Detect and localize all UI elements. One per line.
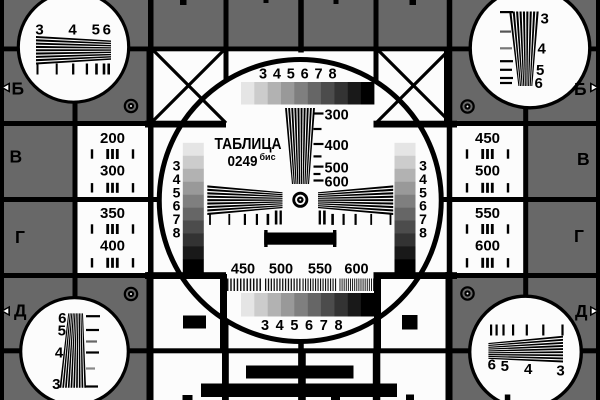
svg-text:3: 3 xyxy=(261,318,269,334)
svg-text:5: 5 xyxy=(287,67,295,83)
svg-text:200: 200 xyxy=(100,130,125,147)
svg-text:550: 550 xyxy=(475,205,500,222)
svg-text:500: 500 xyxy=(475,163,500,180)
svg-text:8: 8 xyxy=(334,318,342,334)
svg-text:600: 600 xyxy=(344,262,368,278)
svg-text:Д: Д xyxy=(14,301,27,321)
svg-text:4: 4 xyxy=(273,67,281,83)
svg-text:6: 6 xyxy=(488,357,496,374)
svg-text:4: 4 xyxy=(538,41,547,58)
svg-text:бис: бис xyxy=(260,152,276,162)
svg-text:5: 5 xyxy=(501,358,509,375)
svg-text:5: 5 xyxy=(58,323,66,340)
svg-text:7: 7 xyxy=(315,67,323,83)
svg-text:ТАБЛИЦА: ТАБЛИЦА xyxy=(215,136,282,153)
svg-text:3: 3 xyxy=(35,22,43,39)
svg-text:4: 4 xyxy=(68,22,77,39)
svg-text:4: 4 xyxy=(55,345,64,362)
svg-text:300: 300 xyxy=(325,108,349,124)
svg-text:6: 6 xyxy=(103,22,111,39)
svg-text:0249: 0249 xyxy=(228,154,258,170)
svg-text:450: 450 xyxy=(475,130,500,147)
svg-text:4: 4 xyxy=(276,318,284,334)
svg-text:500: 500 xyxy=(269,262,293,278)
svg-text:8: 8 xyxy=(419,225,427,241)
svg-text:В: В xyxy=(577,149,590,169)
svg-text:600: 600 xyxy=(475,238,500,255)
svg-text:550: 550 xyxy=(308,262,332,278)
svg-text:3: 3 xyxy=(259,67,267,83)
svg-text:3: 3 xyxy=(541,11,549,28)
svg-text:7: 7 xyxy=(320,318,328,334)
svg-text:400: 400 xyxy=(100,238,125,255)
svg-text:Г: Г xyxy=(15,227,25,247)
svg-text:4: 4 xyxy=(524,361,533,378)
svg-text:В: В xyxy=(10,147,23,167)
svg-text:6: 6 xyxy=(305,318,313,334)
svg-text:Б: Б xyxy=(12,79,25,99)
svg-text:400: 400 xyxy=(325,138,349,154)
svg-text:5: 5 xyxy=(290,318,298,334)
svg-text:6: 6 xyxy=(535,75,543,92)
svg-text:Б: Б xyxy=(574,79,587,99)
svg-text:8: 8 xyxy=(328,67,336,83)
svg-text:350: 350 xyxy=(100,205,125,222)
svg-text:600: 600 xyxy=(325,175,349,191)
svg-text:8: 8 xyxy=(173,225,181,241)
svg-text:5: 5 xyxy=(92,22,100,39)
svg-text:450: 450 xyxy=(231,262,255,278)
svg-text:Д: Д xyxy=(575,301,588,321)
svg-text:300: 300 xyxy=(100,163,125,180)
svg-text:6: 6 xyxy=(301,67,309,83)
svg-text:3: 3 xyxy=(556,363,564,380)
svg-text:Г: Г xyxy=(574,226,584,246)
svg-text:3: 3 xyxy=(52,376,60,393)
